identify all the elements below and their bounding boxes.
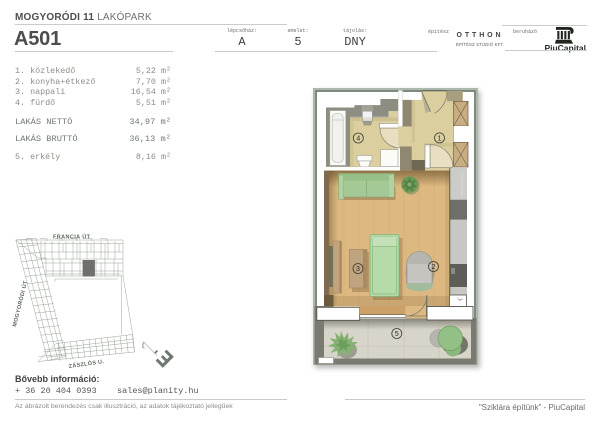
svg-text:ZÁSZLÓS U.: ZÁSZLÓS U. <box>68 357 105 370</box>
svg-text:3: 3 <box>356 266 360 273</box>
svg-text:1: 1 <box>438 136 442 143</box>
svg-text:FRANCIA ÚT: FRANCIA ÚT <box>53 234 91 241</box>
svg-text:MOGYORÓDI ÚT: MOGYORÓDI ÚT <box>10 279 29 327</box>
svg-text:5: 5 <box>395 331 399 338</box>
svg-text:4: 4 <box>356 136 360 143</box>
svg-text:2: 2 <box>432 264 436 271</box>
